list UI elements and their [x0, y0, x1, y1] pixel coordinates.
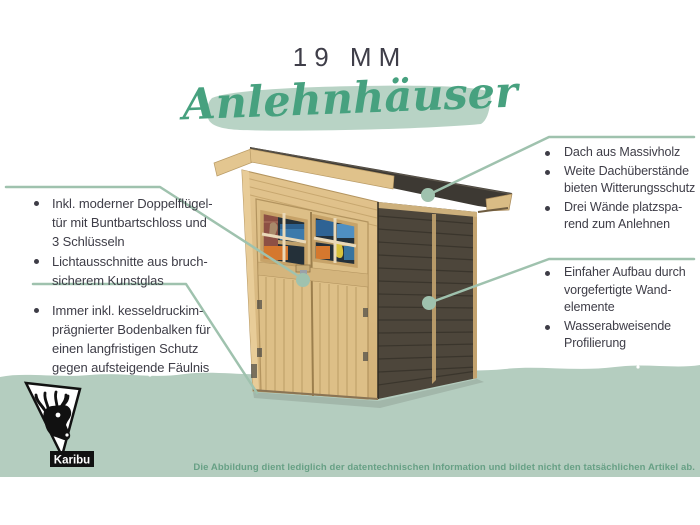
deer-eye	[56, 413, 61, 418]
disclaimer-text: Die Abbildung dient lediglich der datent…	[5, 462, 695, 473]
product-infographic-page: 19 MM Anlehnhäuser	[0, 0, 700, 525]
karibu-logo: Karibu	[0, 0, 700, 525]
deer-nose	[65, 433, 68, 436]
